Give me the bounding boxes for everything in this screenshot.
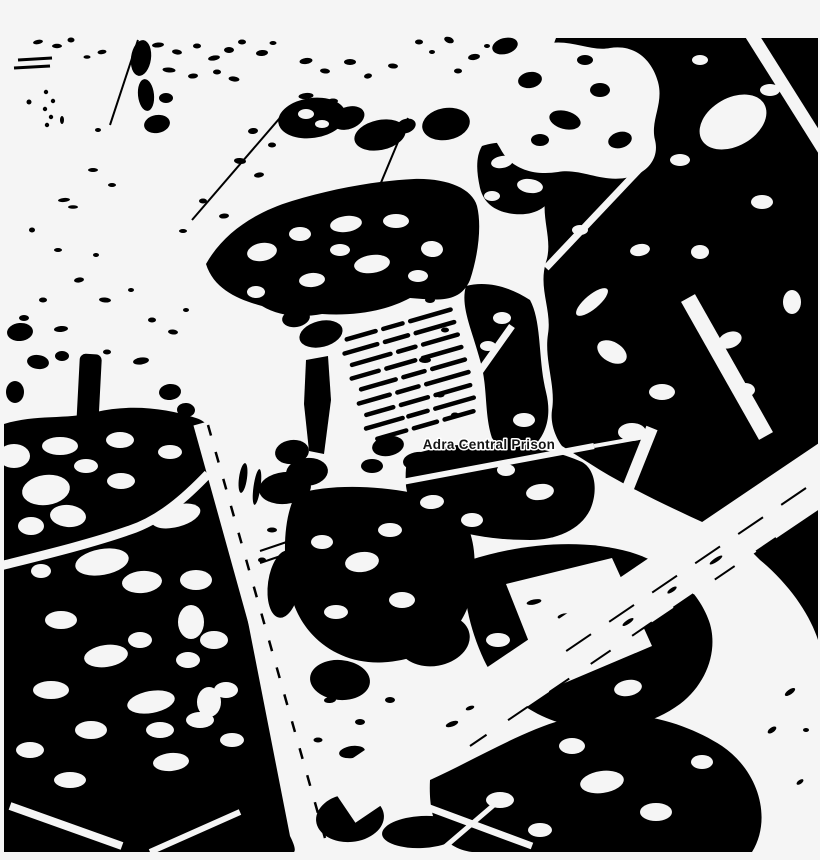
map-label-group: Adra Central Prison	[423, 437, 555, 452]
map-label: Adra Central Prison	[423, 437, 555, 452]
satellite-image: Adra Central Prison	[0, 0, 820, 860]
prison-roof-stripes	[341, 310, 479, 441]
scattered-marks-southeast-corner	[766, 687, 809, 786]
map-canvas: Adra Central Prison	[0, 0, 820, 860]
